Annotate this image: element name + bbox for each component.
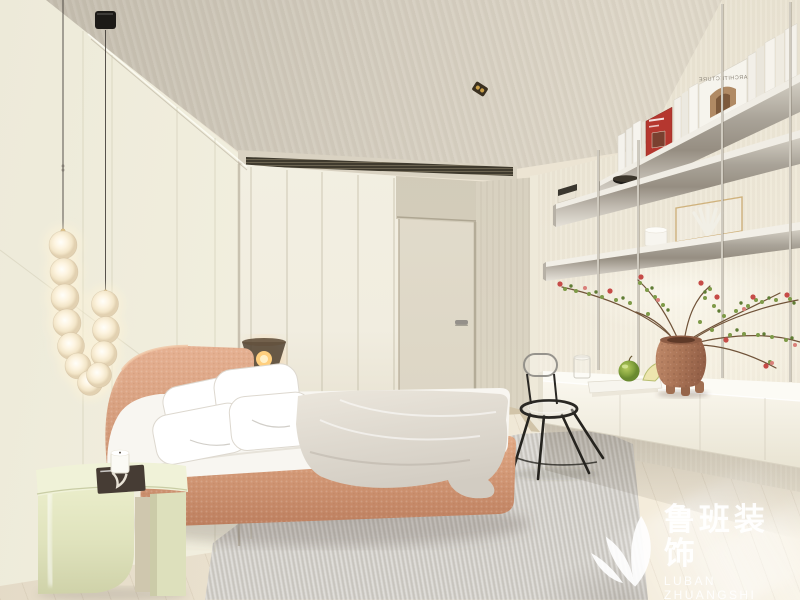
bedroom-interior-render: ARCHITECTURE	[0, 0, 800, 600]
door-handle	[455, 320, 468, 325]
green-apple	[619, 356, 640, 382]
candle	[111, 450, 129, 473]
stool-backrest	[524, 354, 557, 376]
recessed-spotlight	[471, 81, 488, 97]
brand-name-cn: 鲁班装饰	[664, 503, 800, 571]
pearl-pendant-chandelier	[43, 0, 125, 401]
brand-watermark: 鲁班装饰 LUBAN ZHUANGSHI	[586, 503, 800, 600]
glass-cup	[574, 355, 590, 378]
brand-text: 鲁班装饰 LUBAN ZHUANGSHI	[664, 503, 800, 600]
door-frame	[397, 217, 476, 398]
gloss-side-table	[36, 450, 188, 600]
luban-logo-icon	[586, 509, 655, 597]
glowing-orbs	[43, 225, 125, 401]
brand-name-en: LUBAN ZHUANGSHI	[664, 574, 800, 600]
